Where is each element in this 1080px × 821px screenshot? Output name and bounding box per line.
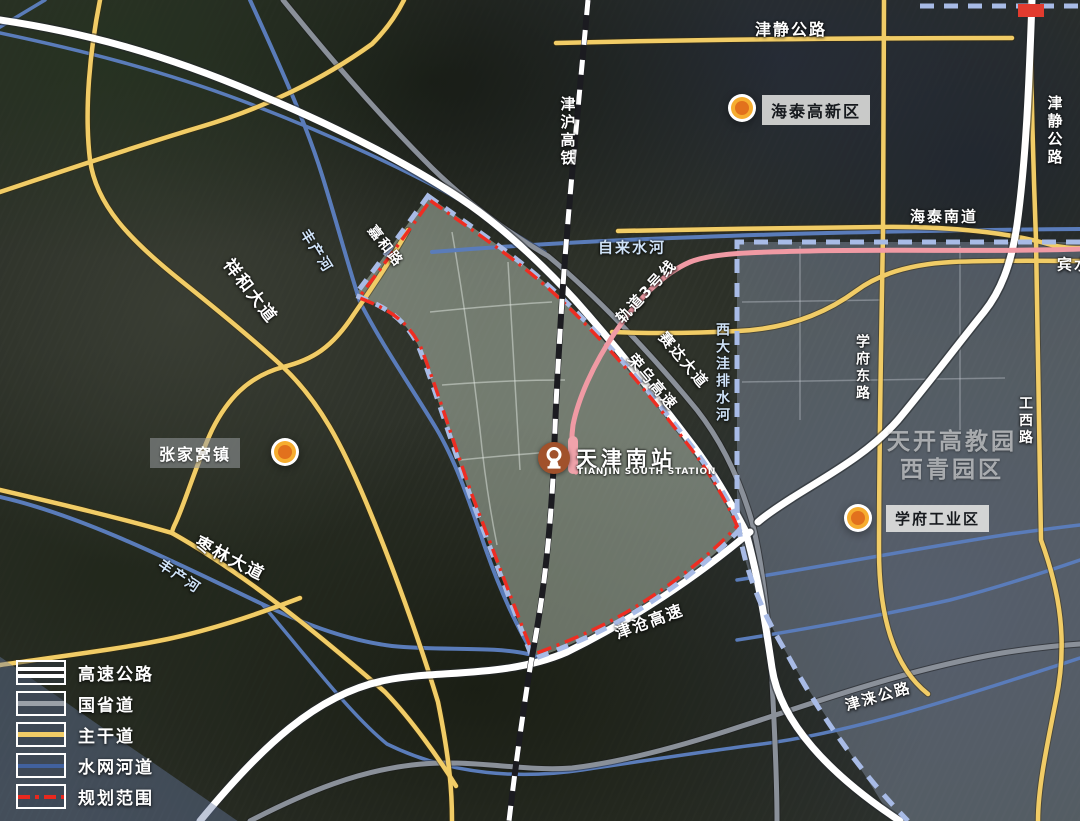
district-label-line1: 天开高教园 (887, 428, 1017, 456)
road-zaolin-avenue (172, 533, 456, 786)
legend-item-arterial: 主干道 (16, 722, 154, 747)
road-label-jinhu-rail: 津沪高铁 (558, 96, 579, 168)
road-southwest-link (0, 598, 300, 665)
legend-item-planning-boundary: 规划范围 (16, 784, 154, 809)
legend-label: 规划范围 (78, 784, 154, 809)
xuefu-label: 学府工业区 (886, 505, 989, 532)
map-graphics (0, 0, 1080, 821)
road-label-jinjing-right: 津静公路 (1045, 95, 1066, 167)
zhangjiawo-label: 张家窝镇 (150, 438, 240, 468)
corner-red-badge (1018, 4, 1044, 17)
legend-item-waterway: 水网河道 (16, 753, 154, 778)
legend-item-expressway: 高速公路 (16, 660, 154, 685)
road-label-xuefu-east: 学府东路 (852, 334, 872, 402)
station-name-en: TIANJIN SOUTH STATION (577, 467, 716, 477)
arterial-line-swatch (16, 722, 66, 747)
national-road-line-swatch (16, 691, 66, 716)
expressway-line-swatch (16, 660, 66, 685)
road-label-jinjing-top: 津静公路 (755, 16, 827, 40)
road-west-link (0, 490, 172, 533)
xuefu-marker (851, 511, 865, 525)
legend: 高速公路 国省道 主干道 水网河道 规划范围 (16, 660, 154, 815)
river-label-xidawa: 西大洼排水河 (712, 322, 732, 424)
waterway-line-swatch (16, 753, 66, 778)
legend-label: 主干道 (78, 722, 135, 747)
haitai-marker (735, 101, 749, 115)
district-label: 天开高教园 西青园区 (887, 428, 1017, 484)
legend-label: 水网河道 (78, 753, 154, 778)
haitai-label: 海泰高新区 (762, 95, 870, 125)
legend-item-national-road: 国省道 (16, 691, 154, 716)
china-railway-emblem-icon (538, 442, 570, 474)
legend-label: 国省道 (78, 691, 135, 716)
zhangjiawo-marker (278, 445, 292, 459)
map-canvas: 津静公路 津静公路 海泰南道 津沪高铁 自来水河 轨道3号线 赛达大道 荣乌高速… (0, 0, 1080, 821)
district-label-line2: 西青园区 (887, 456, 1017, 484)
railway-station-icon (538, 442, 570, 474)
road-label-haitai-south: 海泰南道 (910, 206, 978, 227)
legend-label: 高速公路 (78, 660, 154, 685)
river-label-zilaishui: 自来水河 (598, 237, 666, 258)
planning-boundary-line-swatch (16, 784, 66, 809)
road-label-binshui: 宾水 (1057, 254, 1080, 275)
road-label-gongxi: 工西路 (1015, 396, 1035, 447)
